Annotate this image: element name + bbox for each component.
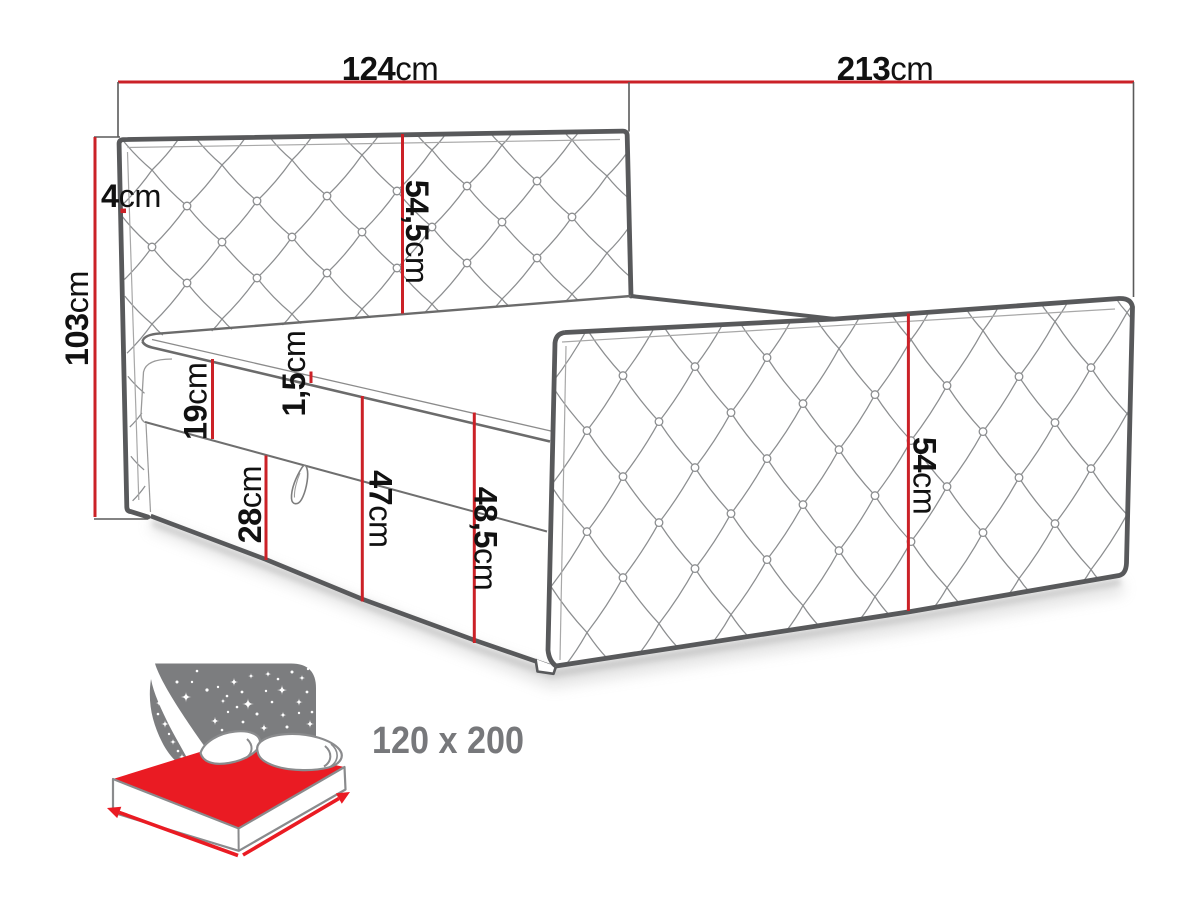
svg-text:124cm: 124cm [342,50,439,87]
svg-text:213cm: 213cm [837,50,934,87]
svg-text:47cm: 47cm [363,470,399,547]
svg-text:1,5cm: 1,5cm [276,330,312,416]
svg-text:48,5cm: 48,5cm [468,487,504,591]
svg-text:54cm: 54cm [906,437,942,514]
svg-text:54,5cm: 54,5cm [399,180,435,284]
svg-text:28cm: 28cm [232,466,268,543]
svg-text:4cm: 4cm [101,178,161,214]
svg-text:19cm: 19cm [178,363,214,440]
svg-text:120 x 200: 120 x 200 [372,720,524,762]
svg-text:103cm: 103cm [59,271,95,366]
